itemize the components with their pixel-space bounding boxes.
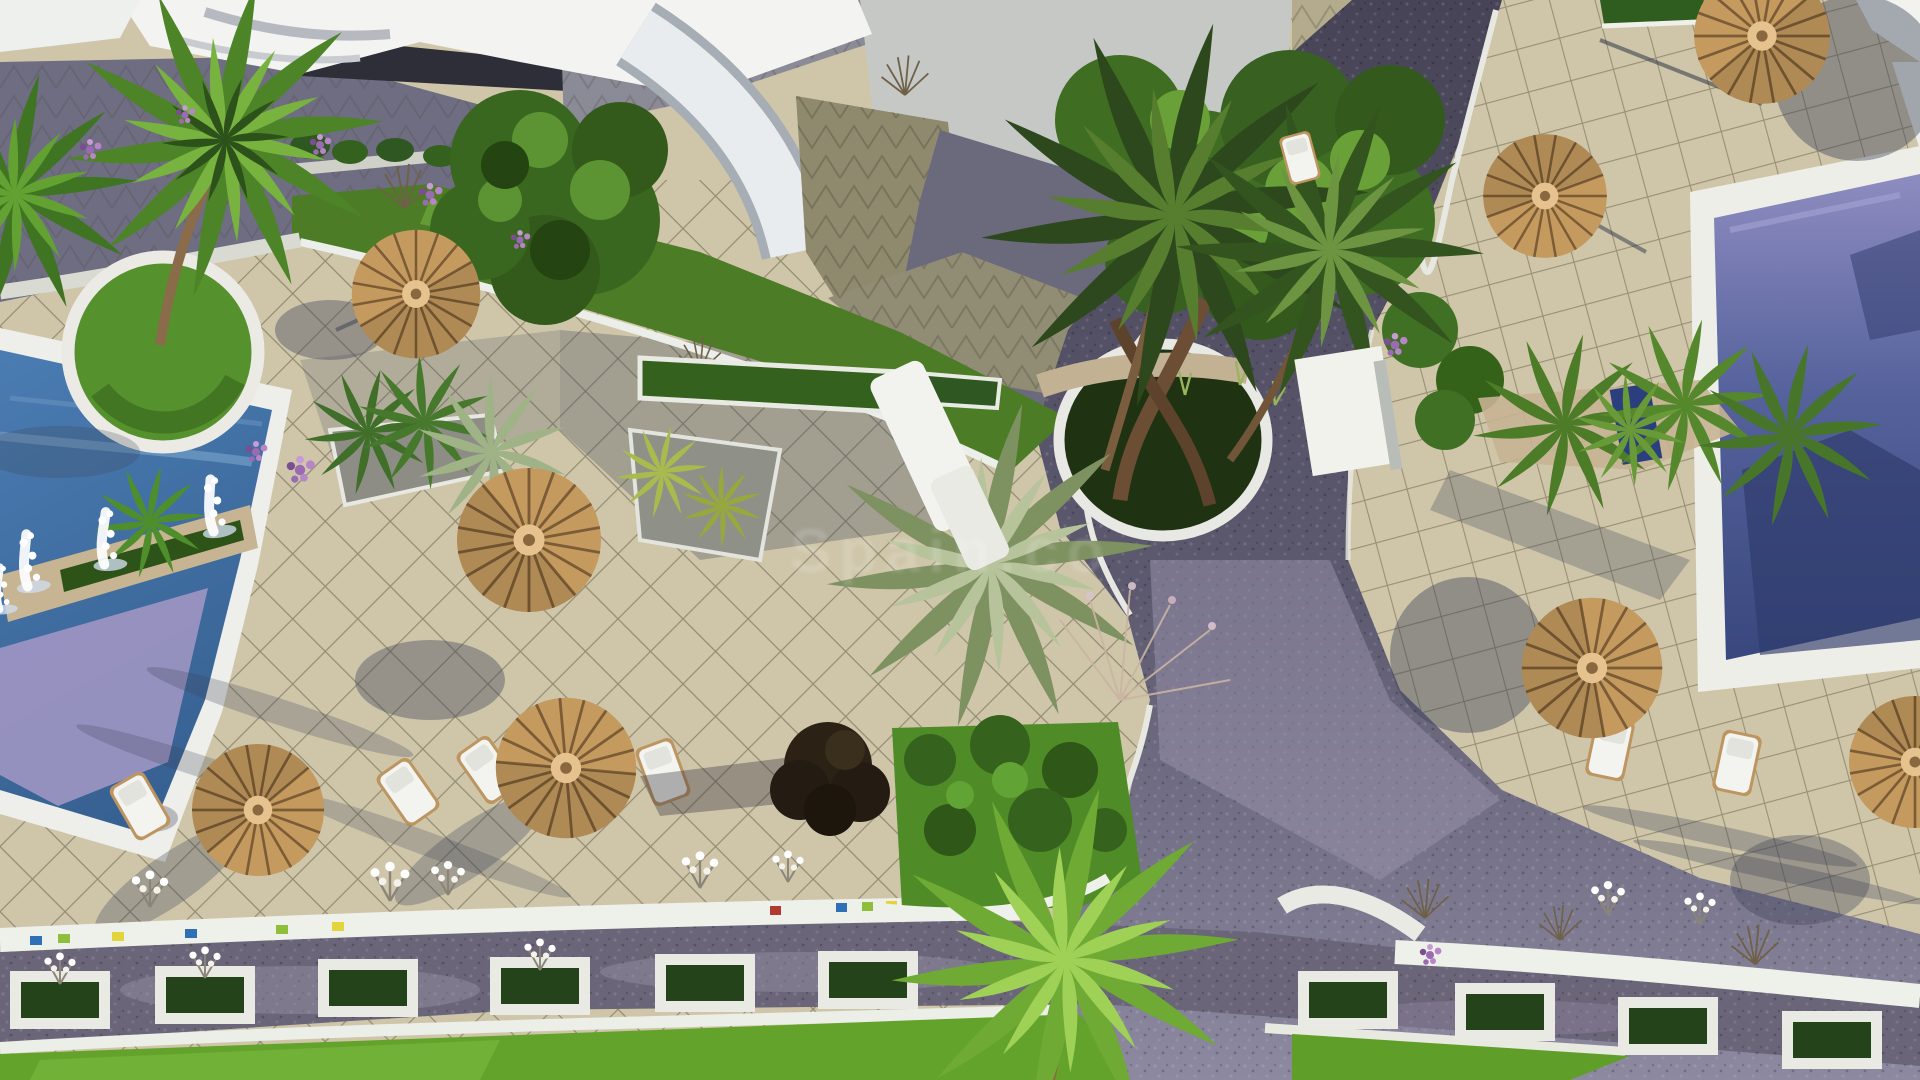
umbrella-shadow <box>355 640 505 720</box>
aerial-render-canvas: Spain.co <box>0 0 1920 1080</box>
umbrella-shadow <box>1390 577 1546 733</box>
watermark-text: Spain.co <box>790 517 1112 586</box>
render-stage: Spain.co <box>0 0 1920 1080</box>
